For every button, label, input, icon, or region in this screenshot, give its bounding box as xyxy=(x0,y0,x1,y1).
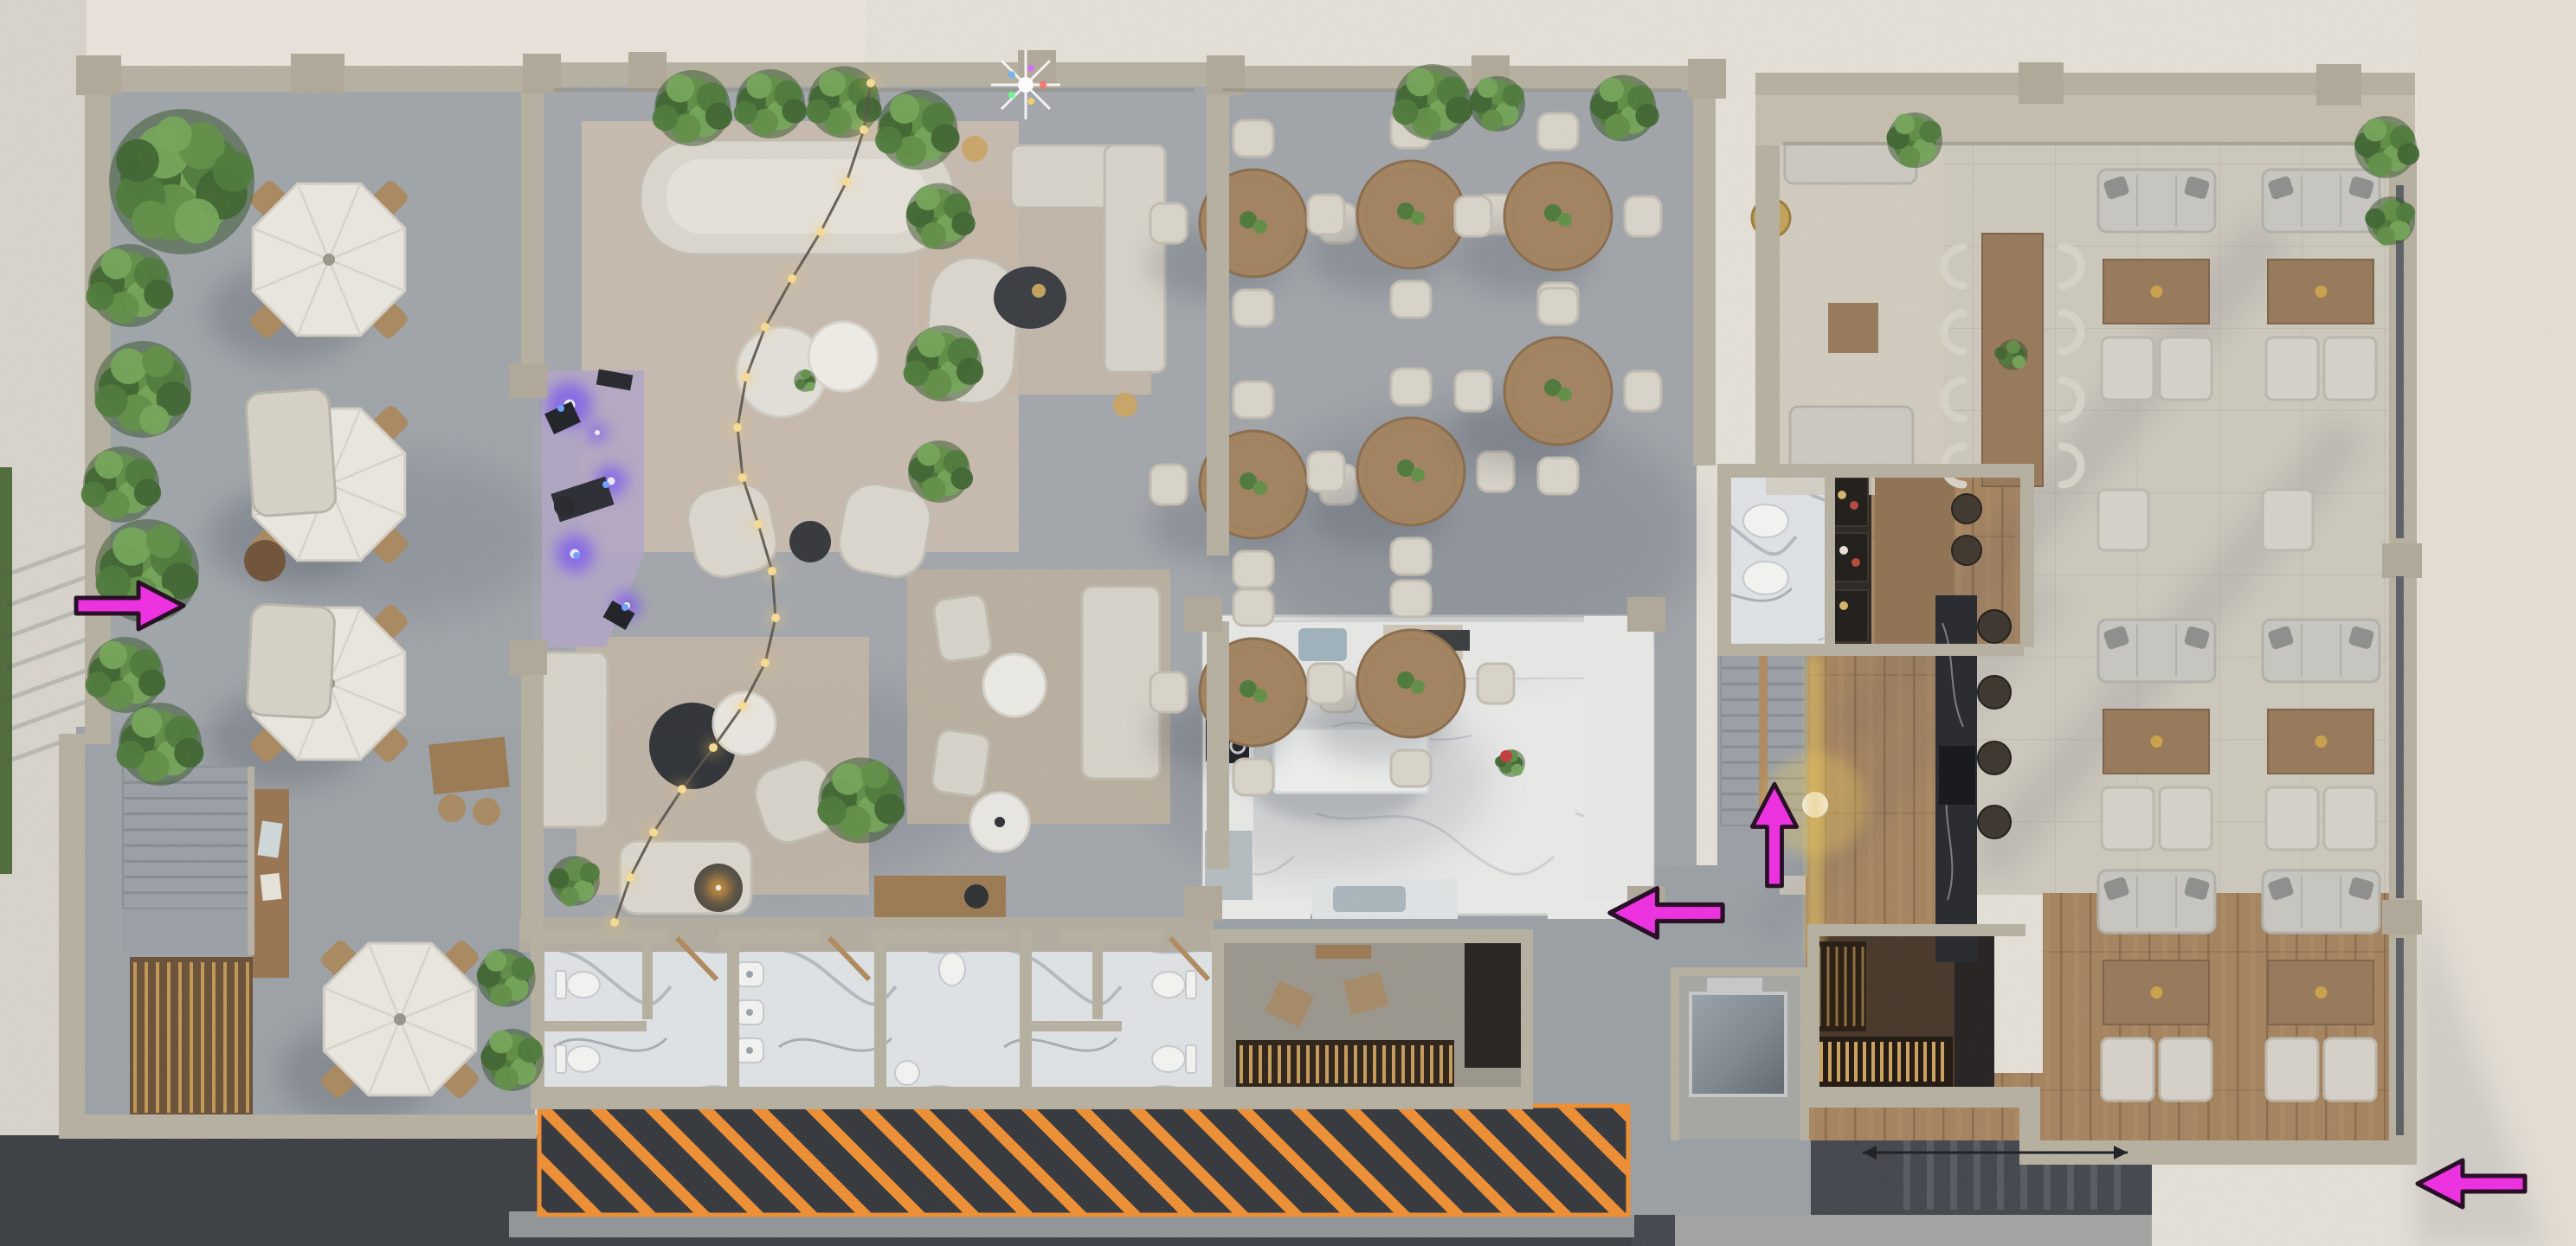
led-dot xyxy=(621,604,628,611)
espresso-machine xyxy=(1939,746,1975,805)
bar-stool xyxy=(1978,742,2011,774)
floor-lamp xyxy=(962,136,988,162)
console-item xyxy=(260,873,281,901)
restroom-basin xyxy=(895,1061,919,1085)
dj-gear xyxy=(554,496,575,517)
terrace-chair xyxy=(473,798,500,825)
toilet xyxy=(556,1045,600,1073)
nook-table xyxy=(1828,303,1878,353)
bottle-cubby xyxy=(1830,533,1868,581)
bottle xyxy=(1839,546,1848,555)
terrace-stairwell xyxy=(123,767,251,909)
toilet xyxy=(1152,1045,1196,1073)
armchair xyxy=(931,729,990,798)
wine-rack xyxy=(1816,941,1866,1031)
bar-stool xyxy=(1978,610,2011,643)
lounger-chair xyxy=(245,389,337,517)
disco-flare xyxy=(991,50,1060,119)
lift-hinge xyxy=(1707,978,1762,993)
bar-stool xyxy=(1978,806,2011,838)
flower xyxy=(1500,750,1512,762)
restroom-sink xyxy=(736,962,763,986)
armchair xyxy=(2098,490,2148,550)
bar-stool xyxy=(1952,494,1981,523)
lower-sidewalk xyxy=(1675,1215,2152,1246)
floorplan-render xyxy=(0,0,2576,1246)
restroom-sink xyxy=(736,1000,763,1024)
console-bowl xyxy=(964,884,989,909)
tray xyxy=(1032,284,1046,298)
table-plant xyxy=(794,369,816,392)
wine-rack-slats xyxy=(1821,1042,1942,1082)
floor-lamp xyxy=(1113,393,1137,417)
bar-stool xyxy=(1952,536,1981,565)
led-dot xyxy=(573,552,580,559)
lounger-chair xyxy=(247,604,336,719)
hatched-zone-stripes xyxy=(539,1106,1628,1215)
led-dot xyxy=(557,405,564,412)
palm-plant xyxy=(109,109,254,254)
coffee-table xyxy=(808,322,878,391)
bar-stool xyxy=(1978,676,2011,709)
floorplan-svg xyxy=(0,0,2576,1246)
bottle-cubby xyxy=(1830,590,1868,642)
side-table xyxy=(789,521,831,562)
nook-sofa xyxy=(1790,407,1913,472)
scene xyxy=(0,0,2576,1246)
sofa xyxy=(1082,587,1160,779)
armchair xyxy=(2263,490,2313,550)
terrace-chair xyxy=(438,794,466,822)
powder-basin xyxy=(1743,562,1788,594)
edge-hedge-strip xyxy=(0,467,12,874)
bottle-cubby xyxy=(1830,478,1868,526)
underbar-light xyxy=(1809,654,1821,959)
kitchen-sink xyxy=(1298,628,1347,661)
toilet xyxy=(1152,971,1196,999)
terrace-table xyxy=(428,737,510,795)
bottle xyxy=(1838,491,1846,499)
prep-sink xyxy=(1333,886,1406,912)
bottle xyxy=(1839,601,1848,610)
stair-landing xyxy=(123,909,251,954)
roof-band xyxy=(1755,95,2415,145)
stair-rail xyxy=(248,767,254,955)
powder-basin xyxy=(1743,504,1788,537)
side-table xyxy=(244,540,286,581)
restroom-sink xyxy=(736,1038,763,1063)
sofa-cushions xyxy=(667,159,926,234)
storage-cabinet xyxy=(1465,936,1525,1068)
led-dot xyxy=(602,481,609,488)
kitchen-counter-right xyxy=(1584,616,1653,915)
storage-table xyxy=(1316,945,1371,959)
planter xyxy=(94,341,191,438)
bistro-table-base xyxy=(995,817,1005,827)
dark-coffee-table xyxy=(994,267,1066,329)
bottle xyxy=(1850,501,1858,510)
fire-glow xyxy=(707,877,730,899)
toilet xyxy=(556,971,600,999)
round-table xyxy=(983,654,1046,716)
bottle xyxy=(1851,558,1860,567)
sofa xyxy=(535,652,608,827)
armchair xyxy=(932,594,992,663)
service-lift-hatch xyxy=(1690,993,1786,1095)
window-glass xyxy=(2396,185,2404,1135)
powder-room-floor xyxy=(1719,472,1828,649)
stage-light-glow xyxy=(587,422,608,443)
